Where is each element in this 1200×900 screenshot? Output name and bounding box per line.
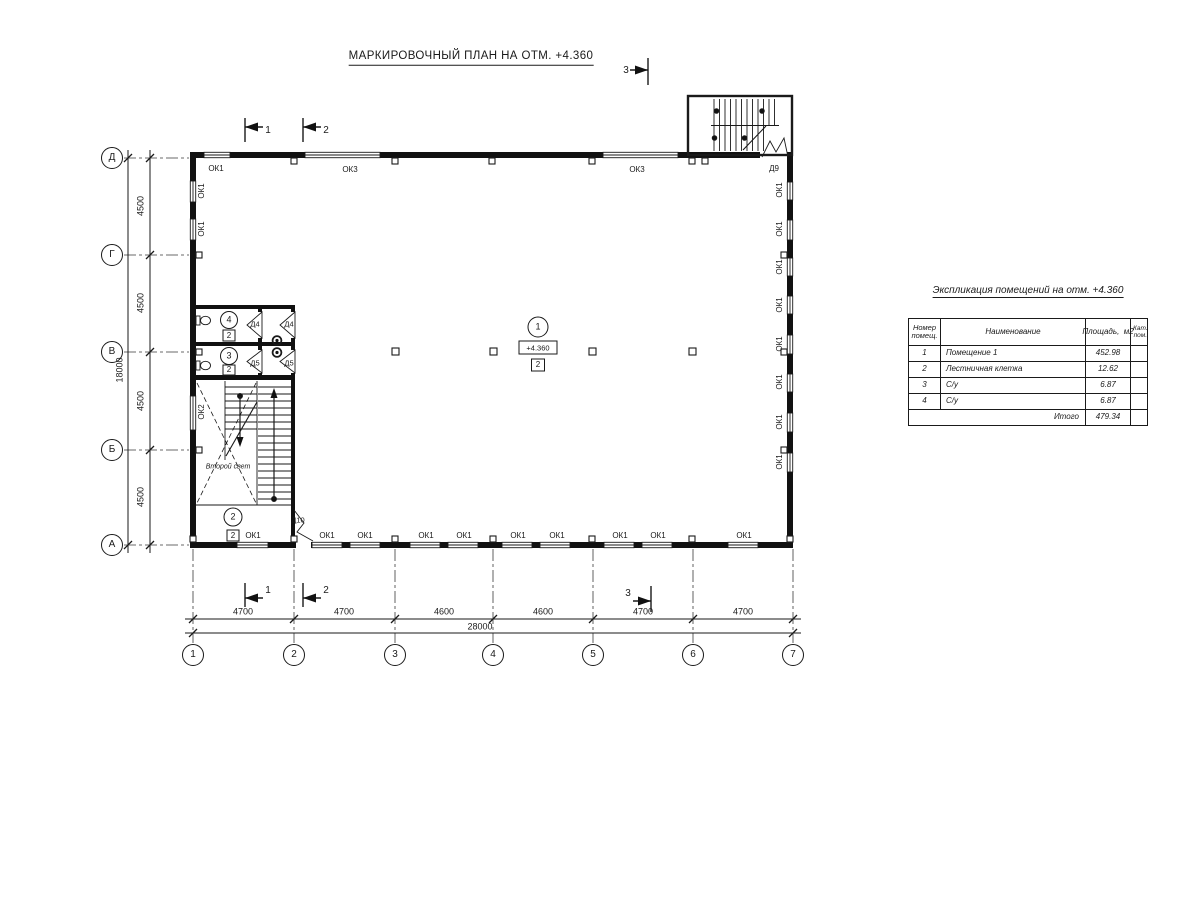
window-label: ОК1 xyxy=(776,182,784,197)
dim-label: 4700 xyxy=(334,608,354,617)
schedule-title: Экспликация помещений на отм. +4.360 xyxy=(933,286,1124,298)
door-label: Д5 xyxy=(250,359,259,367)
axis-letter: Г xyxy=(109,250,114,260)
second-light-label: Второй свет xyxy=(206,464,251,471)
door-label: Д10 xyxy=(291,516,304,524)
window-label: ОК2 xyxy=(198,404,206,419)
window-label: ОК1 xyxy=(198,183,206,198)
header-number: Номер помещ. xyxy=(909,319,941,345)
room-number: 2 xyxy=(230,513,235,522)
room-category: 2 xyxy=(227,332,231,340)
axis-number: 2 xyxy=(291,650,297,660)
room-area-cell: 6.87 xyxy=(1086,393,1131,409)
room-name-cell: С/у xyxy=(941,377,1086,393)
room-category: 2 xyxy=(227,366,231,374)
door-label: Д9 xyxy=(769,165,779,173)
window-label: ОК1 xyxy=(776,221,784,236)
axis-bubbles xyxy=(102,148,804,666)
dim-label: 4500 xyxy=(137,391,146,411)
total-label-cell: Итого xyxy=(909,409,1086,425)
room-number: 1 xyxy=(535,323,540,332)
door-label: Д4 xyxy=(284,320,293,328)
section-marker-label: 3 xyxy=(623,66,629,76)
window-label: ОК3 xyxy=(629,166,644,174)
interior-stair xyxy=(196,381,291,505)
room-number: 4 xyxy=(226,316,231,325)
section-marker-label: 2 xyxy=(323,126,329,136)
door-label: Д5 xyxy=(284,359,293,367)
room-name-cell: С/у xyxy=(941,393,1086,409)
axis-letter: Д xyxy=(109,153,116,163)
window-label: ОК1 xyxy=(245,532,260,540)
room-name-cell: Помещение 1 xyxy=(941,345,1086,361)
axis-number: 5 xyxy=(590,650,596,660)
window-label: ОК3 xyxy=(342,166,357,174)
schedule-total-row: Итого 479.34 xyxy=(909,409,1147,425)
axis-letter: Б xyxy=(109,445,116,455)
door-swings xyxy=(247,138,788,541)
room-number-cell: 3 xyxy=(909,377,941,393)
window-label: ОК1 xyxy=(510,532,525,540)
dim-label: 4700 xyxy=(733,608,753,617)
dim-label: 4700 xyxy=(633,608,653,617)
room-category-cell xyxy=(1131,345,1147,361)
axis-number: 1 xyxy=(190,650,196,660)
dim-label: 4500 xyxy=(137,196,146,216)
room-category: 2 xyxy=(536,361,540,369)
section-marker-label: 3 xyxy=(625,589,631,599)
axis-number: 7 xyxy=(790,650,796,660)
window-label: ОК1 xyxy=(319,532,334,540)
table-row: 4 С/у 6.87 xyxy=(909,393,1147,409)
drawing-title: МАРКИРОВОЧНЫЙ ПЛАН НА ОТМ. +4.360 xyxy=(349,51,594,66)
room-elevation: +4.360 xyxy=(526,344,549,352)
room-number-cell: 1 xyxy=(909,345,941,361)
external-stair xyxy=(688,96,792,155)
grid-lines xyxy=(124,158,793,643)
schedule-header-row: Номер помещ. Наименование Площадь, м2 Ка… xyxy=(909,319,1147,345)
window-label: ОК1 xyxy=(776,259,784,274)
room-category-cell xyxy=(1131,361,1147,377)
dim-label: 4700 xyxy=(233,608,253,617)
total-area-cell: 479.34 xyxy=(1086,409,1131,425)
window-label: ОК1 xyxy=(776,414,784,429)
window-label: ОК1 xyxy=(776,454,784,469)
table-row: 3 С/у 6.87 xyxy=(909,377,1147,393)
header-category: Кат. пом. xyxy=(1131,319,1150,345)
window-label: ОК1 xyxy=(198,221,206,236)
room-category-cell xyxy=(1131,377,1147,393)
axis-letter: В xyxy=(109,347,116,357)
window-label: ОК1 xyxy=(776,297,784,312)
window-label: ОК1 xyxy=(208,165,223,173)
dim-label: 4600 xyxy=(434,608,454,617)
section-marker-label: 2 xyxy=(323,586,329,596)
table-row: 1 Помещение 1 452.98 xyxy=(909,345,1147,361)
room-schedule-table: Номер помещ. Наименование Площадь, м2 Ка… xyxy=(908,318,1148,426)
window-label: ОК1 xyxy=(776,374,784,389)
floor-plan-linework xyxy=(0,0,1200,900)
table-row: 2 Лестничная клетка 12.62 xyxy=(909,361,1147,377)
room-number-cell: 4 xyxy=(909,393,941,409)
dim-label: 4600 xyxy=(533,608,553,617)
door-label: Д4 xyxy=(250,320,259,328)
header-name: Наименование xyxy=(941,319,1086,345)
dim-label: 4500 xyxy=(137,487,146,507)
room-area-cell: 6.87 xyxy=(1086,377,1131,393)
axis-letter: А xyxy=(109,540,116,550)
window-label: ОК1 xyxy=(736,532,751,540)
room-number-cell: 2 xyxy=(909,361,941,377)
window-label: ОК1 xyxy=(612,532,627,540)
axis-number: 3 xyxy=(392,650,398,660)
drawing-sheet: МАРКИРОВОЧНЫЙ ПЛАН НА ОТМ. +4.360 Д Г В … xyxy=(0,0,1200,900)
dim-total-label: 18000 xyxy=(116,357,125,382)
window-label: ОК1 xyxy=(776,336,784,351)
room-number: 3 xyxy=(226,352,231,361)
header-area: Площадь, м2 xyxy=(1086,319,1131,345)
interior-walls xyxy=(196,305,295,542)
section-marker-label: 1 xyxy=(265,586,271,596)
window-label: ОК1 xyxy=(549,532,564,540)
window-label: ОК1 xyxy=(418,532,433,540)
room-category: 2 xyxy=(231,532,235,540)
window-label: ОК1 xyxy=(456,532,471,540)
room-area-cell: 12.62 xyxy=(1086,361,1131,377)
room-category-cell xyxy=(1131,393,1147,409)
dim-label: 4500 xyxy=(137,293,146,313)
room-name-cell: Лестничная клетка xyxy=(941,361,1086,377)
room-area-cell: 452.98 xyxy=(1086,345,1131,361)
window-label: ОК1 xyxy=(357,532,372,540)
dim-total-label: 28000 xyxy=(467,623,492,632)
dimension-lines xyxy=(124,150,801,637)
section-marker-label: 1 xyxy=(265,126,271,136)
axis-number: 4 xyxy=(490,650,496,660)
window-label: ОК1 xyxy=(650,532,665,540)
section-markers xyxy=(245,58,651,612)
total-category-cell xyxy=(1131,409,1147,425)
axis-number: 6 xyxy=(690,650,696,660)
